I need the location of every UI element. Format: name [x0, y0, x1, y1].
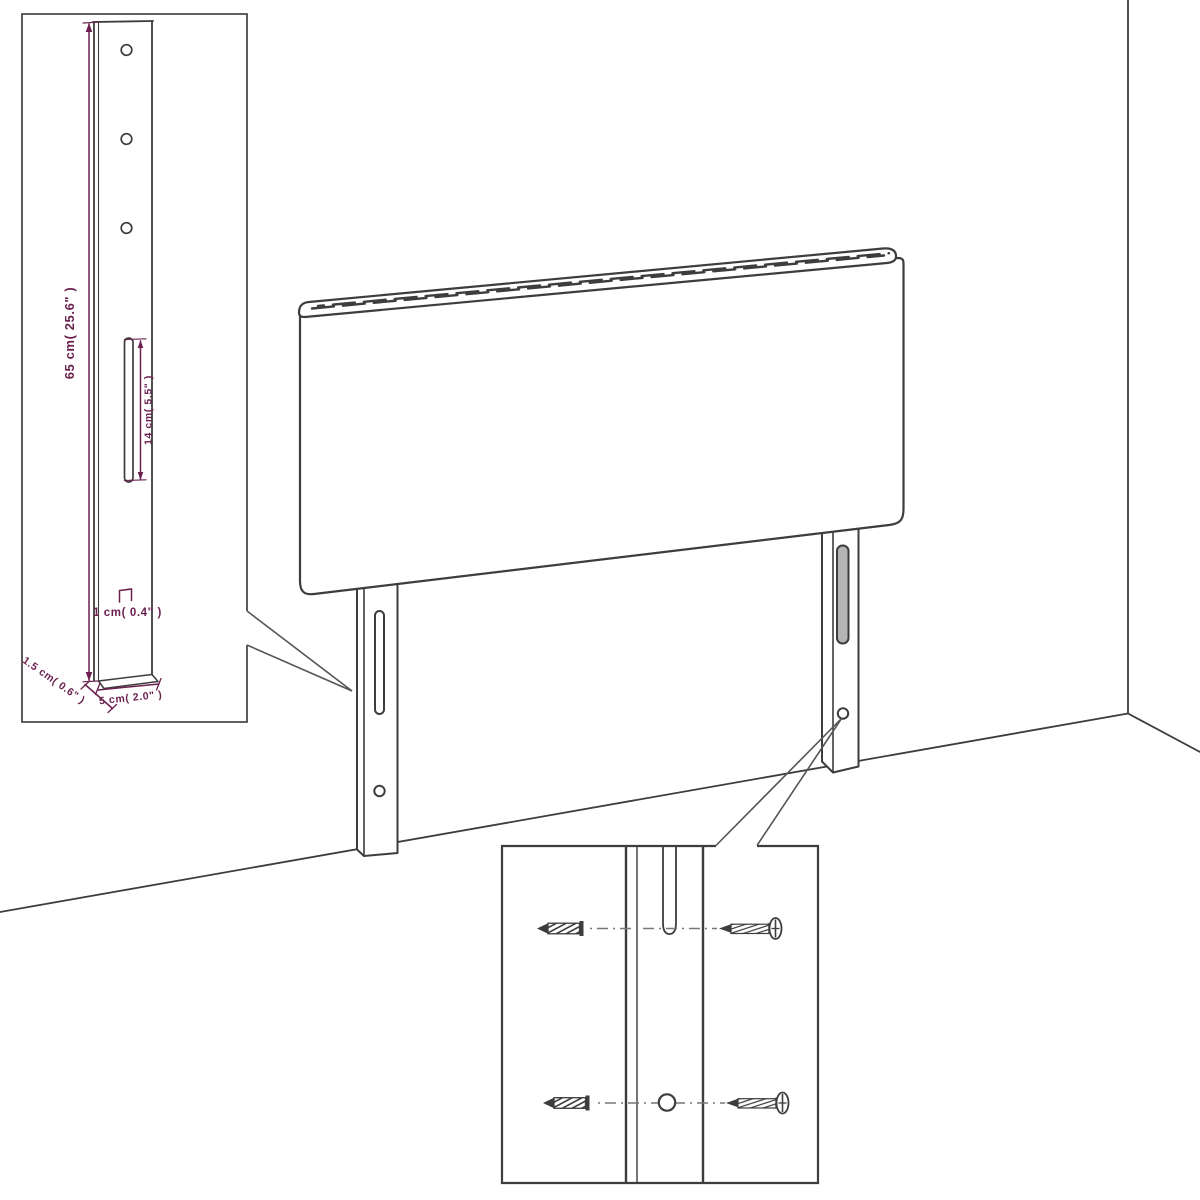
assembly-diagram: 65 cm( 25.6" ) 14 cm( 5.5" ) 1 cm( 0.4" …	[0, 0, 1200, 1200]
hardware-inset-leader-right	[757, 719, 842, 846]
leg-hole-bottom	[121, 223, 132, 234]
headboard-assembly-page: 65 cm( 25.6" ) 14 cm( 5.5" ) 1 cm( 0.4" …	[0, 0, 1200, 1200]
left-leg	[357, 573, 398, 856]
hole-offset-label: 1 cm( 0.4" )	[93, 607, 162, 619]
right-leg	[822, 520, 859, 773]
leg-hole-top	[121, 45, 132, 56]
slot-length-label: 14 cm( 5.5" )	[143, 375, 155, 445]
left-leg-hole	[374, 786, 384, 796]
right-leg-slot	[837, 546, 849, 644]
hardware-inset-background	[502, 846, 818, 1183]
headboard-panel	[299, 248, 904, 594]
leg-slot-front-view	[125, 338, 134, 482]
leg-detail-inset: 65 cm( 25.6" ) 14 cm( 5.5" ) 1 cm( 0.4" …	[20, 14, 247, 722]
leg-hole-middle	[121, 134, 132, 145]
callout-leader-lines	[247, 611, 842, 846]
leg-height-label: 65 cm( 25.6" )	[62, 287, 77, 380]
right-floor-line	[1128, 714, 1200, 753]
hardware-detail-inset	[502, 846, 818, 1183]
hw-mounting-hole	[659, 1094, 675, 1110]
leg-inset-leader-top	[247, 611, 352, 691]
left-leg-slot	[375, 611, 384, 714]
right-leg-hole	[838, 708, 848, 718]
leg-top-edge	[93, 21, 153, 22]
